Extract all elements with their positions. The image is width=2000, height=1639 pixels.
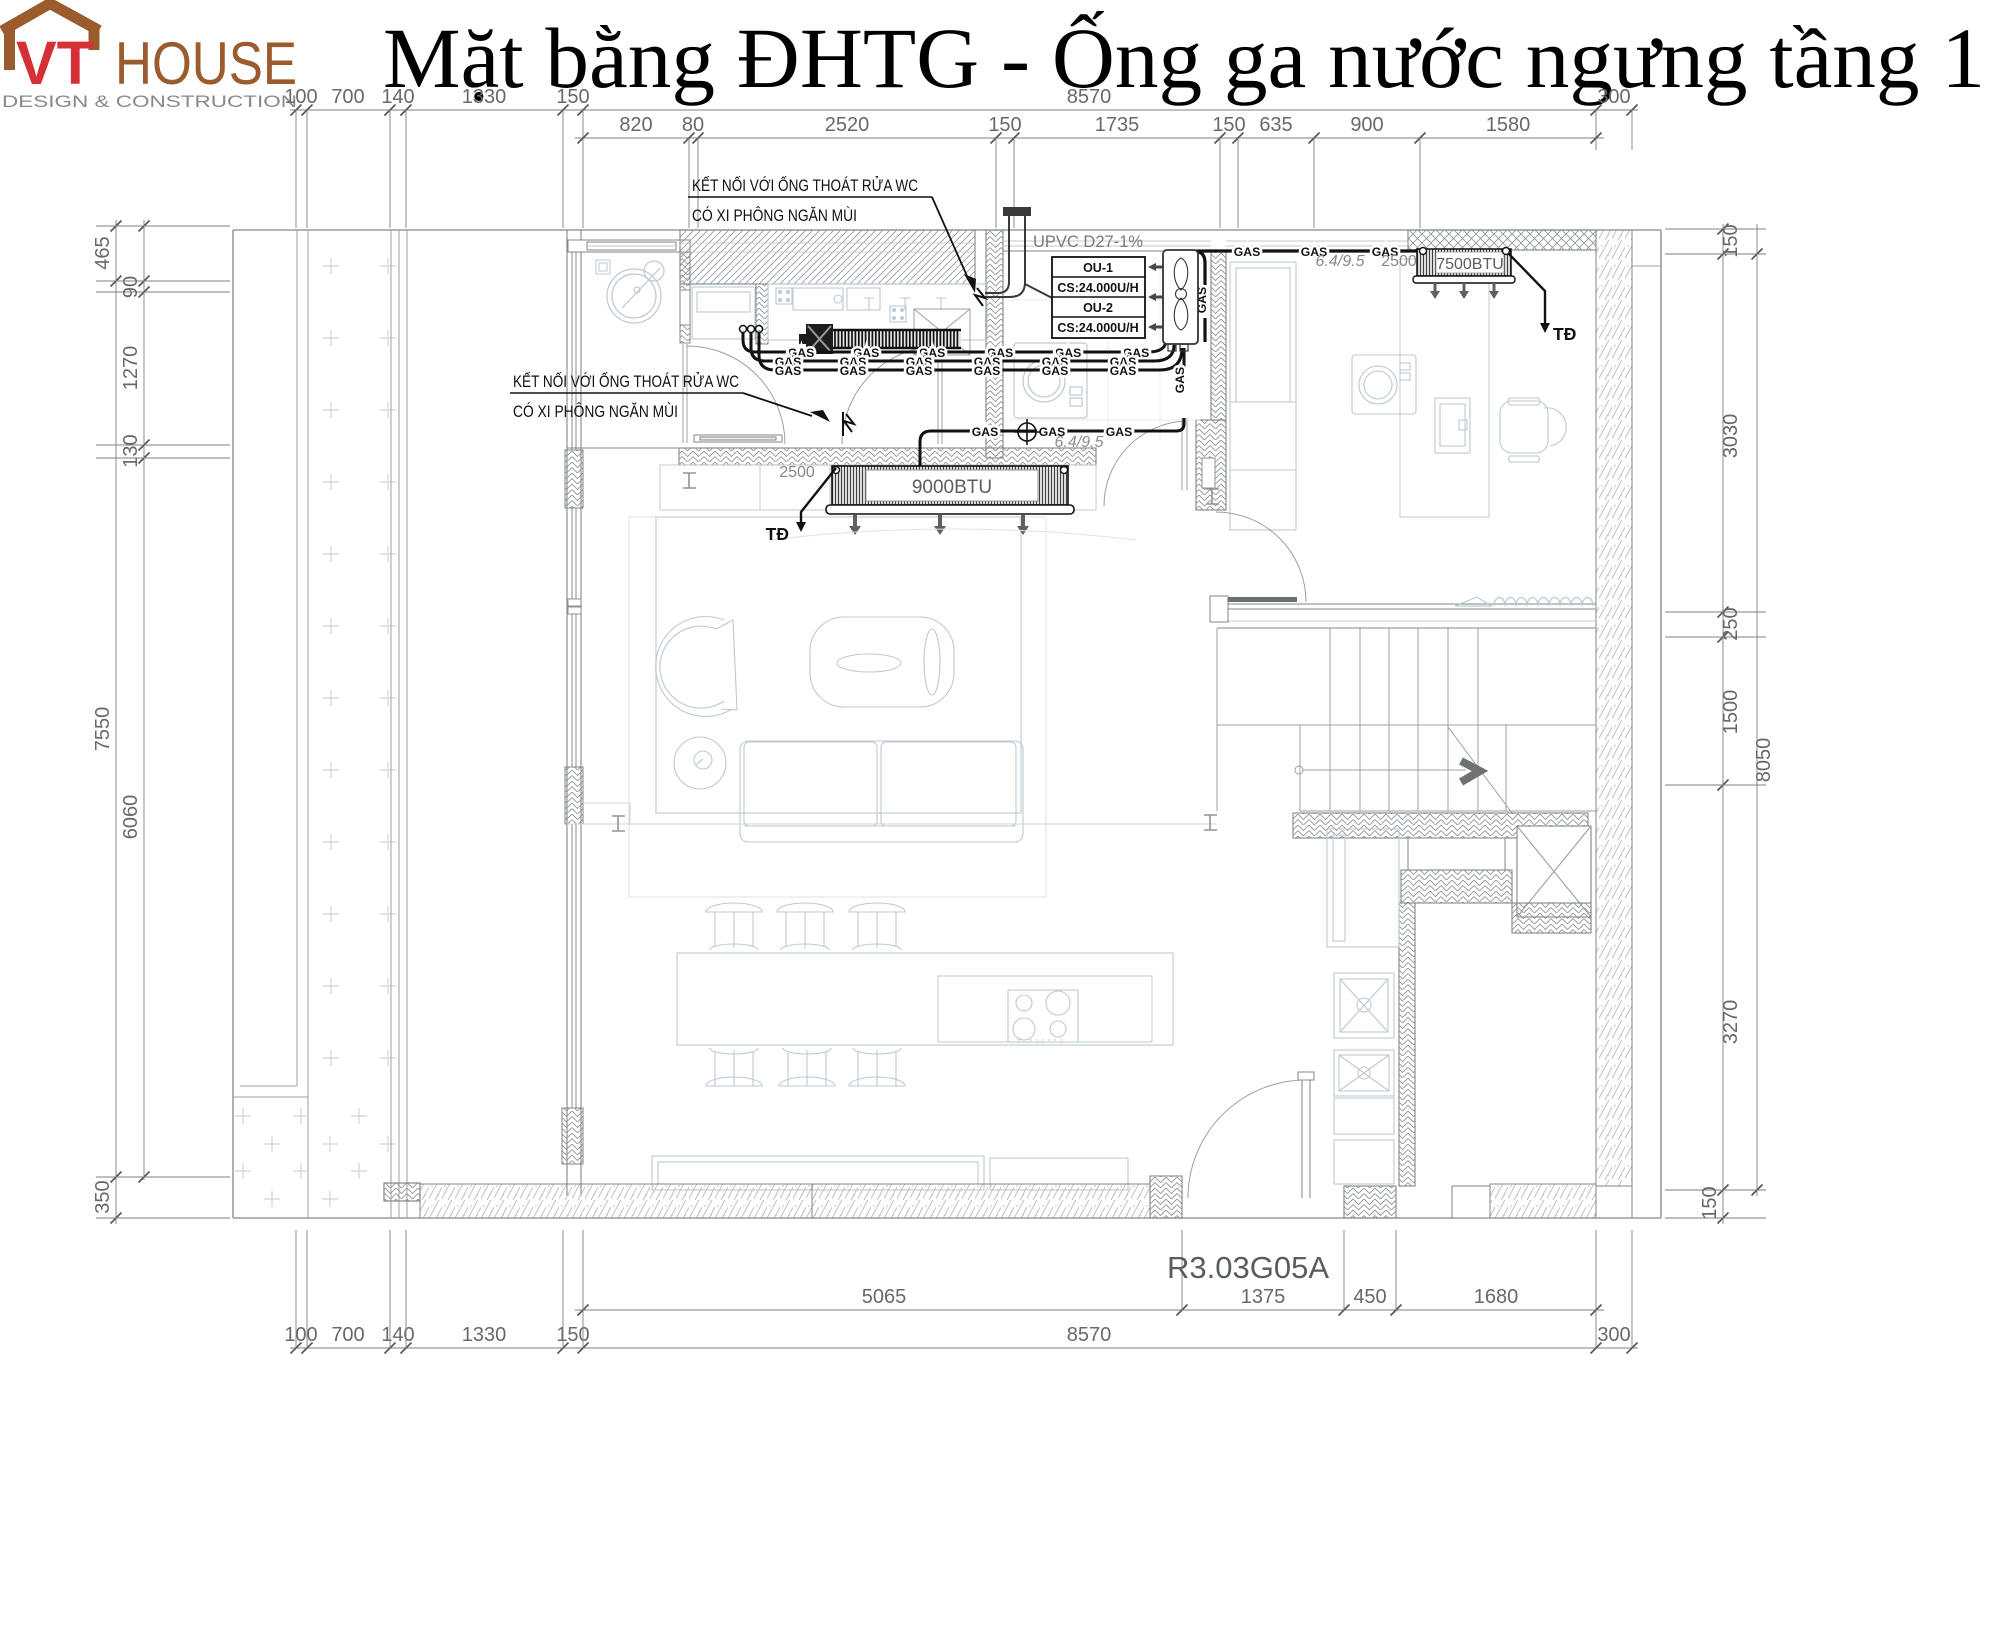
svg-text:DESIGN & CONSTRUCTION: DESIGN & CONSTRUCTION xyxy=(2,93,297,111)
svg-text:150: 150 xyxy=(1699,1186,1721,1219)
svg-text:6060: 6060 xyxy=(120,795,142,840)
svg-text:TĐ: TĐ xyxy=(1553,324,1576,344)
svg-text:100: 100 xyxy=(284,1324,317,1346)
svg-text:1330: 1330 xyxy=(462,1324,507,1346)
svg-text:150: 150 xyxy=(988,114,1021,136)
svg-text:2520: 2520 xyxy=(825,114,870,136)
svg-text:GAS: GAS xyxy=(775,364,801,378)
svg-text:Mặt bằng ĐHTG - Ống ga nước ng: Mặt bằng ĐHTG - Ống ga nước ngưng tầng 1 xyxy=(383,9,1985,106)
svg-text:130: 130 xyxy=(120,434,142,467)
svg-text:GAS: GAS xyxy=(906,364,932,378)
svg-text:1580: 1580 xyxy=(1486,114,1531,136)
svg-text:6.4/9.5: 6.4/9.5 xyxy=(1055,434,1104,451)
svg-text:2500: 2500 xyxy=(1381,253,1417,270)
svg-text:GAS: GAS xyxy=(1234,245,1260,259)
svg-text:GAS: GAS xyxy=(1173,367,1187,393)
svg-text:140: 140 xyxy=(381,86,414,108)
svg-text:GAS: GAS xyxy=(1110,364,1136,378)
svg-text:450: 450 xyxy=(1353,1286,1386,1308)
svg-text:635: 635 xyxy=(1259,114,1292,136)
svg-text:140: 140 xyxy=(381,1324,414,1346)
svg-text:GAS: GAS xyxy=(840,364,866,378)
svg-text:GAS: GAS xyxy=(1042,364,1068,378)
svg-text:350: 350 xyxy=(92,1180,114,1213)
svg-text:1500: 1500 xyxy=(1720,690,1742,735)
svg-text:CS:24.000U/H: CS:24.000U/H xyxy=(1057,281,1138,295)
svg-text:2500: 2500 xyxy=(779,464,815,481)
svg-text:465: 465 xyxy=(92,236,114,269)
svg-text:TĐ: TĐ xyxy=(766,524,789,544)
svg-text:150: 150 xyxy=(1212,114,1245,136)
svg-text:KẾT NỐI VỚI ỐNG THOÁT RỬA WC: KẾT NỐI VỚI ỐNG THOÁT RỬA WC xyxy=(692,175,918,195)
svg-text:1330: 1330 xyxy=(462,86,507,108)
svg-text:GAS: GAS xyxy=(1106,425,1132,439)
svg-text:CS:24.000U/H: CS:24.000U/H xyxy=(1057,321,1138,335)
svg-text:150: 150 xyxy=(1720,224,1742,257)
svg-text:KẾT NỐI VỚI ỐNG THOÁT RỬA WC: KẾT NỐI VỚI ỐNG THOÁT RỬA WC xyxy=(513,371,739,391)
svg-text:UPVC D27-1%: UPVC D27-1% xyxy=(1033,233,1143,251)
svg-text:9000BTU: 9000BTU xyxy=(912,477,992,498)
svg-text:HOUSE: HOUSE xyxy=(115,30,297,97)
svg-text:7550: 7550 xyxy=(92,707,114,752)
svg-text:OU-1: OU-1 xyxy=(1083,261,1113,275)
svg-text:GAS: GAS xyxy=(974,364,1000,378)
svg-text:1680: 1680 xyxy=(1474,1286,1519,1308)
svg-text:5065: 5065 xyxy=(862,1286,907,1308)
svg-text:8050: 8050 xyxy=(1753,738,1775,783)
svg-text:6.4/9.5: 6.4/9.5 xyxy=(1316,253,1365,270)
svg-text:300: 300 xyxy=(1597,86,1630,108)
svg-text:7500BTU: 7500BTU xyxy=(1436,256,1504,273)
svg-text:R3.03G05A: R3.03G05A xyxy=(1167,1250,1329,1285)
svg-text:820: 820 xyxy=(619,114,652,136)
svg-text:GAS: GAS xyxy=(972,425,998,439)
svg-text:150: 150 xyxy=(556,1324,589,1346)
svg-text:1375: 1375 xyxy=(1241,1286,1286,1308)
svg-text:8570: 8570 xyxy=(1067,86,1112,108)
svg-text:CÓ XI PHÔNG NGĂN MÙI: CÓ XI PHÔNG NGĂN MÙI xyxy=(692,206,857,225)
svg-text:250: 250 xyxy=(1720,607,1742,640)
svg-text:90: 90 xyxy=(120,276,142,298)
svg-text:3270: 3270 xyxy=(1720,1000,1742,1045)
svg-text:OU-2: OU-2 xyxy=(1083,301,1113,315)
svg-text:CÓ XI PHÔNG NGĂN MÙI: CÓ XI PHÔNG NGĂN MÙI xyxy=(513,402,678,421)
svg-text:100: 100 xyxy=(284,86,317,108)
svg-text:1270: 1270 xyxy=(120,346,142,391)
svg-text:700: 700 xyxy=(331,1324,364,1346)
svg-text:VT: VT xyxy=(16,29,94,97)
svg-text:80: 80 xyxy=(682,114,704,136)
svg-text:3030: 3030 xyxy=(1720,414,1742,459)
svg-text:8570: 8570 xyxy=(1067,1324,1112,1346)
svg-text:1735: 1735 xyxy=(1095,114,1140,136)
svg-text:700: 700 xyxy=(331,86,364,108)
svg-text:150: 150 xyxy=(556,86,589,108)
svg-text:300: 300 xyxy=(1597,1324,1630,1346)
svg-text:900: 900 xyxy=(1350,114,1383,136)
